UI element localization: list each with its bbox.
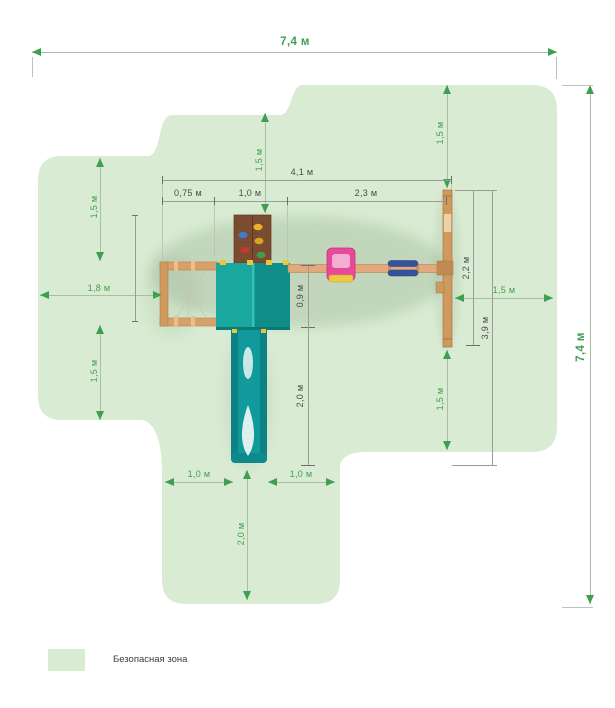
tower-roof-ridge	[252, 263, 255, 330]
slide-cap	[261, 329, 266, 333]
dim-label: 1,8 м	[88, 283, 111, 293]
slide-cap	[232, 329, 237, 333]
dim-label: 1,5 м	[435, 388, 445, 411]
dim-label: 1,5 м	[493, 285, 516, 295]
dim-label: 7,4 м	[575, 332, 587, 362]
frame-rung-cap	[191, 316, 195, 326]
dim-label: 2,2 м	[461, 257, 471, 280]
frame-rung-cap	[191, 261, 195, 271]
tower-post-cap	[220, 260, 226, 265]
dim-label: 0,9 м	[295, 285, 305, 308]
legend-safe-zone-label: Безопасная зона	[113, 654, 187, 665]
climbing-wall	[234, 215, 271, 263]
legend-safe-zone-swatch	[48, 649, 85, 671]
swing-seat	[327, 248, 355, 282]
dim-label: 4,1 м	[291, 167, 314, 177]
slide	[231, 329, 267, 463]
frame-rung-cap	[174, 316, 178, 326]
dim-label: 7,4 м	[280, 36, 310, 48]
dim-label: 1,5 м	[254, 149, 264, 172]
slide-glare	[243, 347, 253, 379]
tower-post-cap	[266, 260, 272, 265]
frame-rung-cap	[174, 261, 178, 271]
dim-label: 1,5 м	[89, 196, 99, 219]
dim-label: 1,5 м	[89, 360, 99, 383]
dim-label: 1,0 м	[290, 469, 313, 479]
dim-label: 1,0 м	[239, 188, 262, 198]
dim-label: 2,0 м	[295, 385, 305, 408]
dim-label: 3,9 м	[480, 317, 490, 340]
dim-label: 0,75 м	[174, 188, 202, 198]
dim-label: 2,3 м	[355, 188, 378, 198]
playground-safety-plan: 7,4 м 7,4 м 1,5 м 1,5 м 1,5 м 1,8 м	[0, 0, 615, 708]
dim-label: 2,0 м	[236, 523, 246, 546]
tower-post-cap	[247, 260, 253, 265]
play-tower	[216, 260, 290, 330]
dim-label: 1,5 м	[435, 122, 445, 145]
swing-seat-base	[329, 275, 353, 282]
dim-label: 1,0 м	[188, 469, 211, 479]
